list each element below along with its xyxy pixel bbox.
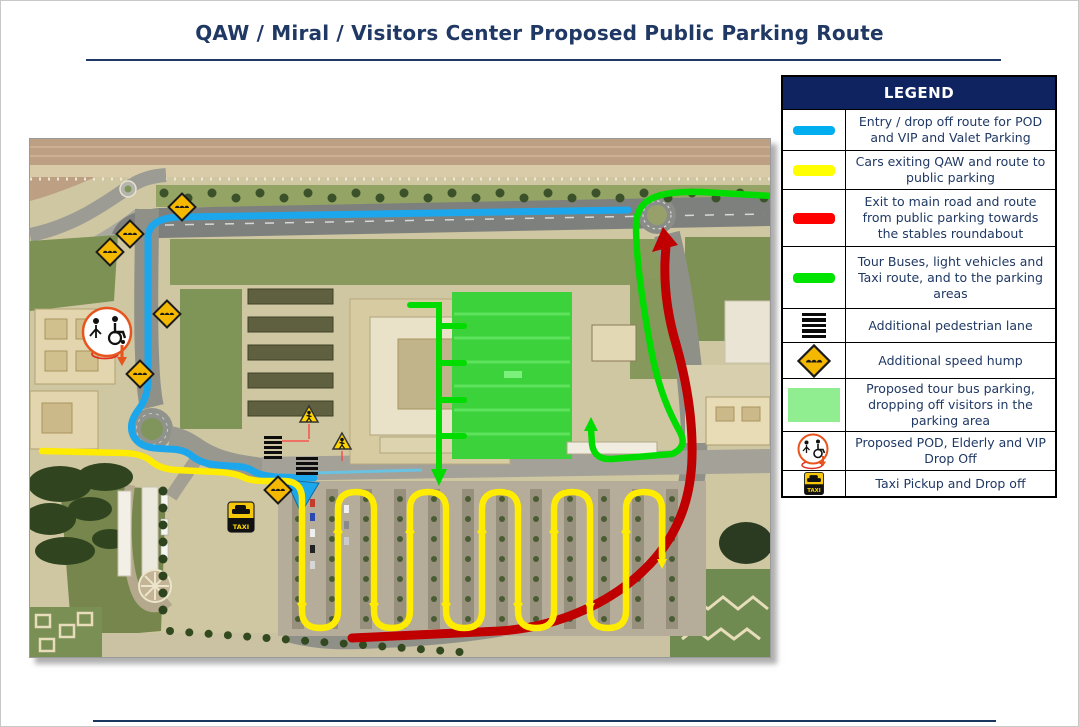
taxi-sign-icon: TAXI <box>228 502 254 532</box>
tour-bus-parking-area <box>452 292 572 459</box>
tree <box>304 189 313 198</box>
title-underline <box>86 59 1001 61</box>
small-building <box>592 325 636 361</box>
tree <box>398 644 406 652</box>
tree <box>378 642 386 650</box>
legend-row-tour-bus-parking: Proposed tour bus parking, dropping off … <box>783 378 1055 431</box>
legend-row-pod-drop-off: Proposed POD, Elderly and VIP Drop Off <box>783 431 1055 470</box>
tree <box>301 637 309 645</box>
tree <box>359 641 367 649</box>
tree <box>159 487 168 496</box>
tree <box>243 633 251 641</box>
legend-text: Exit to main road and route from public … <box>845 190 1055 246</box>
tree <box>544 189 553 198</box>
tree <box>328 194 337 203</box>
legend-text: Tour Buses, light vehicles and Taxi rout… <box>845 247 1055 308</box>
tree <box>376 194 385 203</box>
legend-row-exit-route: Exit to main road and route from public … <box>783 189 1055 246</box>
legend-row-tour-bus-route: Tour Buses, light vehicles and Taxi rout… <box>783 246 1055 308</box>
taxi-pickup-icon: TAXI <box>803 472 825 495</box>
legend-text: Cars exiting QAW and route to public par… <box>845 151 1055 189</box>
tree <box>496 189 505 198</box>
tree <box>159 589 168 598</box>
tree <box>256 189 265 198</box>
pedestrian-lane-icon <box>802 313 826 339</box>
green-route-swatch <box>793 273 835 283</box>
legend-row-speed-hump: Additional speed hump <box>783 342 1055 378</box>
tree <box>159 606 168 615</box>
speed-hump-icon <box>796 344 832 378</box>
tree <box>205 630 213 638</box>
tree <box>520 194 529 203</box>
tree <box>424 194 433 203</box>
tree <box>448 189 457 198</box>
legend-text: Taxi Pickup and Drop off <box>845 471 1055 496</box>
legend-text: Additional pedestrian lane <box>845 309 1055 342</box>
tree <box>208 189 217 198</box>
blue-route-swatch <box>793 126 835 135</box>
legend-row-taxi: TAXI Taxi Pickup and Drop off <box>783 470 1055 496</box>
legend-text: Proposed tour bus parking, dropping off … <box>845 379 1055 431</box>
tree <box>166 627 174 635</box>
page-title: QAW / Miral / Visitors Center Proposed P… <box>1 21 1078 45</box>
tree <box>472 194 481 203</box>
tree <box>159 555 168 564</box>
slide: { "page": { "title": "QAW / Miral / Visi… <box>0 0 1079 727</box>
tree <box>640 189 649 198</box>
tree <box>436 647 444 655</box>
tour-bus-parking-swatch <box>788 388 840 422</box>
tree <box>160 189 169 198</box>
tree <box>263 634 271 642</box>
tree <box>352 189 361 198</box>
tree <box>159 504 168 513</box>
taxi-sign-label: TAXI <box>233 523 249 531</box>
taxi-legend-label: TAXI <box>807 488 821 494</box>
map-canvas: TAXI <box>30 139 770 657</box>
legend-row-cars-exiting: Cars exiting QAW and route to public par… <box>783 150 1055 189</box>
tree <box>185 628 193 636</box>
red-route-swatch <box>793 213 835 224</box>
tree <box>417 645 425 653</box>
ornate-garden <box>30 607 102 657</box>
tree <box>320 638 328 646</box>
legend-table: LEGEND Entry / drop off route for POD an… <box>781 75 1057 498</box>
tree <box>568 194 577 203</box>
tree <box>592 189 601 198</box>
tree <box>159 538 168 547</box>
tree <box>159 521 168 530</box>
tree <box>282 635 290 643</box>
tree <box>456 648 464 656</box>
tree <box>232 194 241 203</box>
legend-text: Proposed POD, Elderly and VIP Drop Off <box>845 432 1055 470</box>
yellow-route-swatch <box>793 165 835 176</box>
legend-row-pedestrian-lane: Additional pedestrian lane <box>783 308 1055 342</box>
tree <box>616 194 625 203</box>
tree <box>159 572 168 581</box>
legend-text: Entry / drop off route for POD and VIP a… <box>845 110 1055 150</box>
pod-drop-off-icon <box>795 432 833 470</box>
legend-text: Additional speed hump <box>845 343 1055 378</box>
long-shelter-building <box>567 442 657 454</box>
public-parking-lot <box>278 481 706 636</box>
legend-header: LEGEND <box>783 77 1055 109</box>
tree <box>400 189 409 198</box>
tree <box>340 640 348 648</box>
footer-rule <box>93 720 996 722</box>
legend-row-entry-route: Entry / drop off route for POD and VIP a… <box>783 109 1055 150</box>
aerial-route-map: TAXI <box>29 138 771 658</box>
tree <box>224 631 232 639</box>
tree <box>280 194 289 203</box>
